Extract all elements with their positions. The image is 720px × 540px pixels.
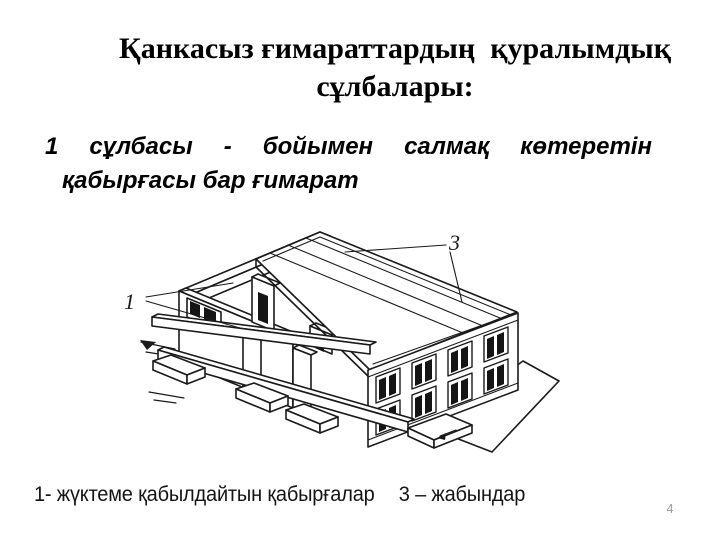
page-number: 4 — [660, 502, 680, 516]
caption-walls: 1- жүктеме қабылдайтын қабырғалар — [34, 482, 375, 507]
building-diagram: 1 3 — [0, 0, 720, 540]
figure-caption: 1- жүктеме қабылдайтын қабырғалар 3 – жа… — [34, 482, 525, 507]
door-opening — [258, 292, 268, 324]
figure-label-walls: 1 — [124, 289, 135, 314]
figure-label-slabs: 3 — [448, 230, 460, 255]
caption-slabs: 3 – жабындар — [399, 482, 525, 507]
presentation-slide: Қанкасыз ғимараттардың қуралымдық сұлбал… — [0, 0, 720, 540]
